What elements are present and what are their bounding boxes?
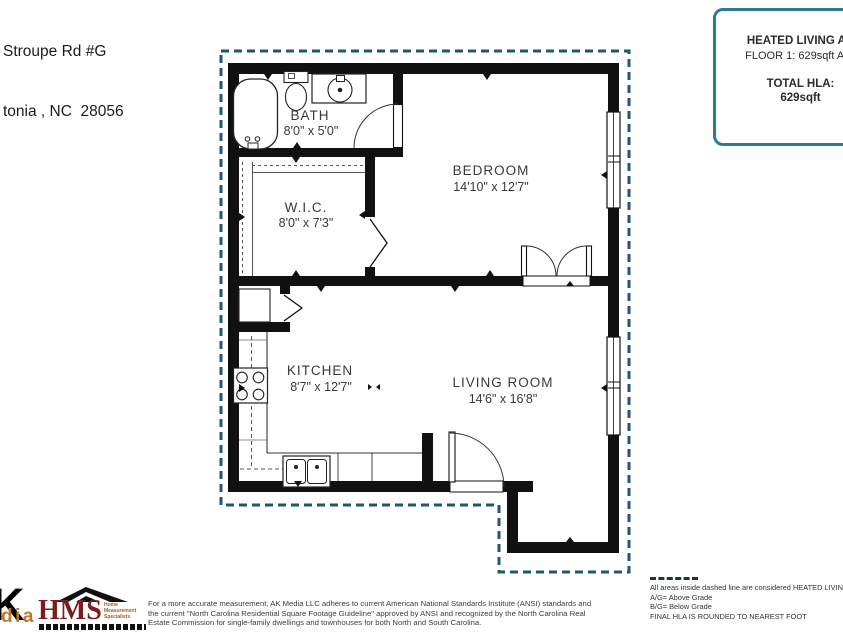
bathtub xyxy=(234,79,278,149)
pantry-shelf xyxy=(239,289,270,322)
living-room-window xyxy=(607,337,620,435)
wall-bottom-left xyxy=(228,481,450,492)
pantry-wall-bottom xyxy=(228,322,290,332)
floor-plan-page: { "address": { "line1": "Stroupe Rd #G",… xyxy=(0,0,843,632)
bedroom-window xyxy=(607,112,620,208)
stove xyxy=(234,368,268,403)
bath-door xyxy=(354,104,403,148)
hms-tagline: Home Measurement Specialists xyxy=(104,602,136,620)
hms-logo: HMS Home Measurement Specialists xyxy=(38,585,150,632)
hms-tape-icon xyxy=(39,624,146,630)
kitchen-label: KITCHEN xyxy=(287,363,353,378)
bath-dims: 8'0" x 5'0" xyxy=(284,124,339,138)
wic-wall-right-upper xyxy=(365,157,375,217)
disclaimer-text: For a more accurate measurement, AK Medi… xyxy=(148,599,596,628)
toilet xyxy=(284,72,308,111)
wic-bifold-door xyxy=(370,219,387,267)
wall-right-lower xyxy=(608,435,619,553)
kitchen-dims: 8'7" x 12'7" xyxy=(290,380,352,394)
measure-marker xyxy=(368,384,380,390)
bedroom-living-wall xyxy=(239,276,523,286)
legend-line2: A/G= Above Grade xyxy=(650,593,843,603)
entry-nook-wall-bottom xyxy=(507,542,619,553)
wic-dims: 8'0" x 7'3" xyxy=(279,216,334,230)
kitchen-sink xyxy=(283,456,330,487)
wall-right-upper xyxy=(608,63,619,112)
hms-wordmark: HMS xyxy=(38,597,102,625)
pantry-bifold-door xyxy=(284,295,302,321)
heated-area-boundary xyxy=(221,51,629,572)
legend-line4: FINAL HLA IS ROUNDED TO NEAREST FOOT xyxy=(650,612,843,622)
entry-door xyxy=(449,432,504,492)
living-room-dims: 14'6" x 16'8" xyxy=(469,392,538,406)
bedroom-living-wall-right xyxy=(590,276,618,286)
living-room-label: LIVING ROOM xyxy=(452,375,553,390)
bath-wall-right xyxy=(393,74,403,104)
dashed-line-sample xyxy=(650,577,698,580)
bath-label: BATH xyxy=(290,108,329,123)
legend-line3: B/G= Below Grade xyxy=(650,602,843,612)
disclaimer-line2: the current "North Carolina Residential … xyxy=(148,609,596,619)
bathroom-vanity-sink xyxy=(312,74,366,103)
wall-bottom-mid xyxy=(503,481,533,492)
wic-label: W.I.C. xyxy=(285,200,328,215)
ak-media-logo-sub: dia xyxy=(1,607,36,626)
legend-line1: All areas inside dashed line are conside… xyxy=(650,583,843,593)
bedroom-label: BEDROOM xyxy=(453,163,530,178)
bedroom-dims: 14'10" x 12'7" xyxy=(453,180,529,194)
kitchen-living-wall-stub xyxy=(422,433,433,492)
disclaimer-line1: For a more accurate measurement, AK Medi… xyxy=(148,599,596,609)
legend: All areas inside dashed line are conside… xyxy=(650,577,843,621)
pantry-wall-stub xyxy=(280,286,290,294)
disclaimer-line3: Estate Commission for single-family dwel… xyxy=(148,618,596,628)
bedroom-double-doors xyxy=(522,246,592,286)
floor-plan-drawing: BATH 8'0" x 5'0" BEDROOM 14'10" x 12'7" … xyxy=(0,0,843,632)
wall-right-mid xyxy=(608,208,619,337)
